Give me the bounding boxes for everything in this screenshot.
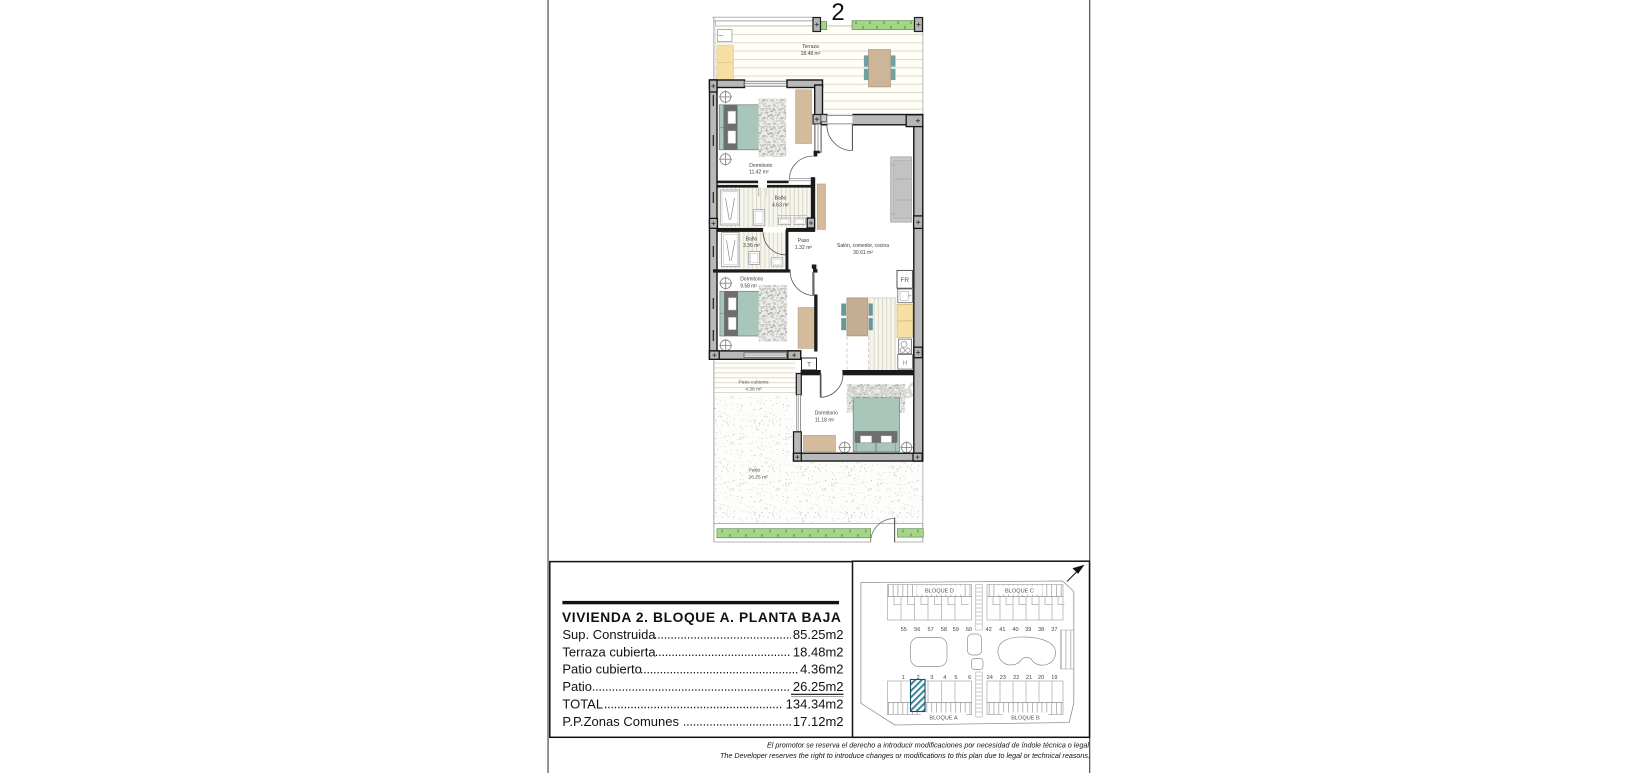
svg-text:VIVIENDA 2. BLOQUE A. PLANTA B: VIVIENDA 2. BLOQUE A. PLANTA BAJA xyxy=(562,610,841,625)
svg-text:2: 2 xyxy=(831,0,844,26)
svg-text:9.58 m²: 9.58 m² xyxy=(740,283,757,289)
svg-text:BLOQUE A: BLOQUE A xyxy=(929,716,958,722)
svg-text:20: 20 xyxy=(1038,675,1044,681)
svg-text:6: 6 xyxy=(968,675,971,681)
svg-text:H: H xyxy=(903,360,907,367)
svg-text:TOTAL: TOTAL xyxy=(562,697,603,712)
svg-text:40: 40 xyxy=(1012,627,1018,633)
svg-text:60: 60 xyxy=(966,627,972,633)
svg-text:26.25 m²: 26.25 m² xyxy=(749,474,769,480)
svg-text:The Developer reserves the rig: The Developer reserves the right to intr… xyxy=(720,751,1090,760)
svg-text:26.25m2: 26.25m2 xyxy=(793,679,844,694)
svg-text:ARe: ARe xyxy=(878,382,913,402)
svg-text:11.18 m²: 11.18 m² xyxy=(815,417,835,423)
svg-text:56: 56 xyxy=(914,627,920,633)
svg-text:Sup. Construida: Sup. Construida xyxy=(562,627,656,642)
svg-text:4.63 m²: 4.63 m² xyxy=(772,202,789,208)
svg-text:23: 23 xyxy=(1000,675,1006,681)
svg-text:Salón, comedor, cocina: Salón, comedor, cocina xyxy=(837,243,889,249)
svg-text:Dormitorio: Dormitorio xyxy=(740,277,763,283)
svg-text:Patio cubierto: Patio cubierto xyxy=(562,662,642,677)
svg-text:39: 39 xyxy=(1025,627,1031,633)
svg-text:18.48m2: 18.48m2 xyxy=(793,644,844,659)
svg-text:1.32 m²: 1.32 m² xyxy=(795,245,812,251)
svg-text:FR: FR xyxy=(901,277,910,284)
svg-text:BLOQUE C: BLOQUE C xyxy=(1005,589,1034,595)
svg-text:Terraza cubierta: Terraza cubierta xyxy=(562,644,656,659)
svg-text:BLOQUE D: BLOQUE D xyxy=(925,589,954,595)
svg-text:42: 42 xyxy=(985,627,991,633)
svg-text:Patio cubierto: Patio cubierto xyxy=(739,380,769,386)
svg-text:55: 55 xyxy=(901,627,907,633)
svg-text:Baño: Baño xyxy=(775,196,787,202)
svg-text:Patio: Patio xyxy=(562,679,592,694)
svg-text:134.34m2: 134.34m2 xyxy=(786,697,844,712)
svg-text:17.12m2: 17.12m2 xyxy=(793,714,844,729)
svg-text:21: 21 xyxy=(1026,675,1032,681)
svg-text:Dormitorio: Dormitorio xyxy=(815,411,838,417)
svg-text:58: 58 xyxy=(941,627,947,633)
svg-text:22: 22 xyxy=(1013,675,1019,681)
svg-text:18.48 m²: 18.48 m² xyxy=(801,51,821,57)
svg-text:59: 59 xyxy=(953,627,959,633)
svg-text:4: 4 xyxy=(943,675,946,681)
svg-text:11.42 m²: 11.42 m² xyxy=(749,170,769,176)
svg-text:Dormitorio: Dormitorio xyxy=(749,163,772,169)
svg-text:Paso: Paso xyxy=(798,238,810,244)
svg-text:SIC: SIC xyxy=(847,382,878,402)
svg-text:Terraza: Terraza xyxy=(802,44,819,50)
svg-text:1: 1 xyxy=(902,675,905,681)
svg-text:5: 5 xyxy=(954,675,957,681)
svg-text:Patio: Patio xyxy=(749,468,760,474)
svg-text:Baño: Baño xyxy=(746,236,758,242)
svg-text:19: 19 xyxy=(1051,675,1057,681)
svg-text:30.61 m²: 30.61 m² xyxy=(853,250,873,256)
svg-text:57: 57 xyxy=(927,627,933,633)
svg-text:BLOQUE B: BLOQUE B xyxy=(1011,716,1040,722)
svg-text:P.P.Zonas Comunes: P.P.Zonas Comunes xyxy=(562,714,679,729)
svg-text:3.36 m²: 3.36 m² xyxy=(743,243,760,249)
svg-text:38: 38 xyxy=(1038,627,1044,633)
svg-text:El promotor se reserva el dere: El promotor se reserva el derecho a intr… xyxy=(767,741,1089,750)
svg-text:41: 41 xyxy=(999,627,1005,633)
svg-text:37: 37 xyxy=(1051,627,1057,633)
svg-text:T: T xyxy=(807,362,811,369)
svg-text:24: 24 xyxy=(987,675,993,681)
svg-text:4.36m2: 4.36m2 xyxy=(800,662,843,677)
svg-text:4.36 m²: 4.36 m² xyxy=(745,386,762,392)
svg-text:85.25m2: 85.25m2 xyxy=(793,627,844,642)
svg-text:3: 3 xyxy=(930,675,933,681)
